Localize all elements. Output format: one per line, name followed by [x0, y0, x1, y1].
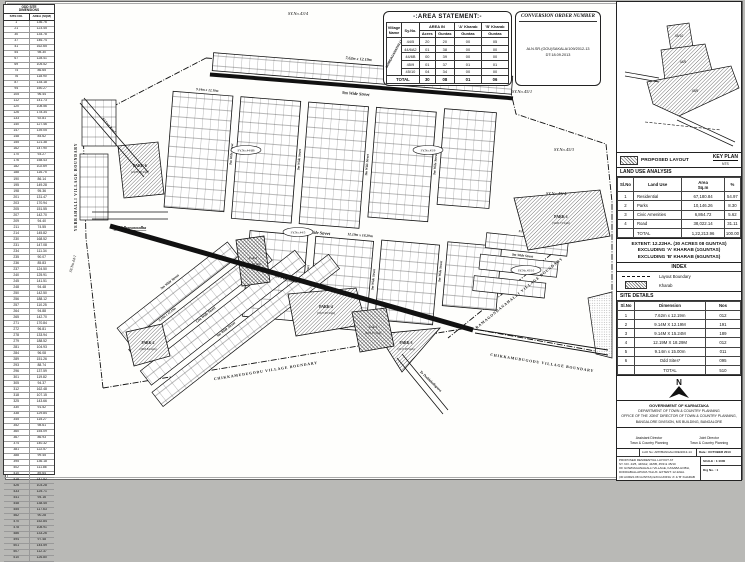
sd-nos: 011: [706, 347, 741, 356]
site-no-cell: 265: [4, 315, 30, 320]
site-block: [299, 102, 368, 228]
boundary-label-bottom: CHIKKAMUDUGODU VILLAGE BOUNDARY: [214, 361, 318, 381]
site-no-cell: 237: [4, 267, 30, 272]
site-area-cell: 111.86: [30, 466, 55, 471]
site-no-cell: 74: [4, 69, 30, 74]
site-no-cell: 301: [4, 375, 30, 380]
dim-label: 9.14m x 12.19m: [196, 87, 219, 93]
dim-label: 7.62m x 12.19m: [345, 55, 372, 62]
land-use-body: 1 Residential 67,180.84 54.97 2 Parks 10…: [618, 192, 741, 238]
main-road-continuation: [475, 333, 608, 355]
sy-oval-label: SY.No.45/9: [421, 149, 436, 153]
site-details-row: TOTAL 510: [618, 366, 741, 375]
site-area-cell: 117.63: [30, 508, 55, 513]
lu-pct: 5.62: [724, 210, 740, 219]
park-4-label: PARK-4: [319, 305, 333, 309]
park-3-area-label: (2317.08 Sqm): [398, 348, 415, 351]
guntas-cell: 20: [435, 38, 454, 46]
drawing-description: PROPOSED RESIDENTIAL LAYOUT AT SY. NO. 4…: [617, 457, 701, 480]
assistant-director-label: Assistant Director: [636, 436, 663, 440]
site-no-cell: 236: [4, 261, 30, 266]
site-area-cell: 118.90: [30, 75, 55, 80]
site-area-cell: 188.12: [30, 297, 55, 302]
lu-area: 6,864.72: [682, 210, 725, 219]
guntas-cell: 37: [435, 60, 454, 68]
col-area-sqm: AREA (SQM): [30, 14, 55, 19]
sy-oval-label: SY.No.45/10: [518, 269, 535, 273]
site-no-cell: 507: [4, 550, 30, 555]
sd-dimension: 9.14M X 12.19M: [635, 320, 706, 329]
total-label: TOTAL: [387, 76, 420, 84]
a-kharab-cell: 00: [454, 68, 481, 76]
conversion-order-box: CONVERSION ORDER NUMBER ALN.SR.(GOU)SAKA…: [515, 11, 601, 86]
site-no-cell: 214: [4, 231, 30, 236]
lu-slno: 4: [618, 219, 634, 228]
b-kharab-cell: 00: [481, 53, 508, 61]
col-dimension: Dimension: [635, 301, 706, 310]
site-details-box: SITE DETAILS Sl.No Dimension Nos 1 7.62m…: [616, 291, 742, 377]
key-plan-svg: 45/10 44/5 45/9: [617, 2, 743, 152]
syno-cell: 44/6B: [402, 53, 420, 61]
b-kharab-cell: 00: [481, 68, 508, 76]
sd-dimension: TOTAL: [635, 366, 706, 375]
site-area-cell: 147.90: [30, 147, 55, 152]
site-no-cell: 278: [4, 333, 30, 338]
a-kharab-cell: 00: [454, 53, 481, 61]
site-details-row: 1 7.62m x 12.19m 012: [618, 310, 741, 319]
site-no-cell: 289: [4, 357, 30, 362]
sd-nos: 191: [706, 320, 741, 329]
site-area-cell: 96.08: [30, 351, 55, 356]
site-area-cell: 94.40: [30, 219, 55, 224]
site-area-cell: 168.52: [30, 237, 55, 242]
site-area-cell: 128.41: [30, 57, 55, 62]
site-area-cell: 162.65: [30, 45, 55, 50]
site-area-cell: 136.18: [30, 460, 55, 465]
kharab-label: Kharab: [659, 283, 673, 288]
site-no-cell: 41: [4, 45, 30, 50]
site-area-cell: 94.37: [30, 381, 55, 386]
street-label: 9m Wide Street: [229, 142, 235, 164]
civic-amenity-1-label: C.A-1: [369, 325, 377, 329]
index-box: INDEX Layout Boundary Kharab: [616, 262, 742, 292]
site-no-cell: 176: [4, 159, 30, 164]
government-block: GOVERNMENT OF KARNATAKA DEPARTMENT OF TO…: [616, 400, 742, 428]
site-no-cell: 256: [4, 297, 30, 302]
site-area-cell: 105.52: [30, 63, 55, 68]
street-label: 9m Wide Street: [296, 148, 302, 170]
land-use-table: Sl.No Land Use Area Sq.m % 1 Residential…: [617, 177, 741, 238]
site-no-cell: 281: [4, 345, 30, 350]
site-no-cell: 230: [4, 237, 30, 242]
site-no-cell: 470: [4, 520, 30, 525]
site-area-cell: 127.46: [30, 123, 55, 128]
joint-director-label: Joint Director: [699, 436, 719, 440]
site-no-cell: 1: [4, 21, 30, 26]
title-block-row1: LHO No: APP/BANGALORE/2013-14 Date : OCT…: [617, 449, 741, 457]
site-area-cell: 104.93: [30, 345, 55, 350]
site-area-cell: 95.36: [30, 189, 55, 194]
site-no-cell: 54: [4, 51, 30, 56]
site-no-cell: 284: [4, 351, 30, 356]
sd-slno: 1: [618, 310, 635, 319]
site-area-cell: 86.93: [30, 436, 55, 441]
col-guntas: Guntas: [481, 30, 508, 38]
site-no-cell: 293: [4, 363, 30, 368]
site-area-cell: 151.55: [30, 207, 55, 212]
syno-cell: 44/5: [402, 38, 420, 46]
site-no-cell: 271: [4, 321, 30, 326]
right-panel: 45/10 44/5 45/9 PROPOSED LAYOUT KEY PLAN…: [616, 2, 742, 481]
col-site-no: SITE NO.: [4, 14, 30, 19]
site-area-cell: 92.81: [30, 117, 55, 122]
conversion-order-title: CONVERSION ORDER NUMBER: [519, 14, 597, 22]
sd-slno: 2: [618, 320, 635, 329]
site-no-cell: 147: [4, 129, 30, 134]
site-no-cell: 37: [4, 39, 30, 44]
total-a-kharab: 01: [454, 76, 481, 84]
site-area-cell: 188.52: [30, 339, 55, 344]
scale-label: SCALE : 1:1000: [701, 457, 741, 466]
site-no-cell: 410: [4, 472, 30, 477]
street-label: 9m Wide Street: [342, 90, 370, 97]
signature-block: Assistant Director Town & Country Planni…: [616, 427, 742, 449]
title-block-row2: PROPOSED RESIDENTIAL LAYOUT AT SY. NO. 4…: [617, 457, 741, 480]
sd-slno: [618, 366, 635, 375]
site-block: [437, 109, 496, 209]
site-area-cell: 147.08: [30, 243, 55, 248]
street-label: 9m Wide Street: [432, 152, 438, 174]
site-no-cell: 312: [4, 387, 30, 392]
lu-name: Parks: [633, 201, 681, 210]
site-area-cell: 90.07: [30, 255, 55, 260]
sd-dimension: Odd Sites*: [635, 356, 706, 365]
site-no-cell: 126: [4, 111, 30, 116]
site-area-cell: 162.48: [30, 387, 55, 392]
col-village: Village Name: [387, 23, 402, 38]
site-area-cell: 123.45: [30, 27, 55, 32]
land-use-box: LAND USE ANALYSIS Sl.No Land Use Area Sq…: [616, 167, 742, 239]
site-area-cell: 110.25: [30, 303, 55, 308]
proposed-layout-label: PROPOSED LAYOUT: [641, 158, 689, 163]
col-a-kharab: 'A' Kharab: [454, 23, 481, 31]
sd-slno: 5: [618, 347, 635, 356]
park-2-label: PARK-2: [142, 341, 155, 345]
site-no-cell: 257: [4, 303, 30, 308]
site-area-cell: 146.74: [30, 39, 55, 44]
site-area-cell: 134.78: [30, 33, 55, 38]
park-1-area: [514, 190, 610, 250]
joint-director-dept: Town & Country Planning: [690, 441, 728, 445]
site-no-cell: 235: [4, 255, 30, 260]
date-label: Date : OCTOBER 2013: [697, 449, 741, 456]
sd-nos: 012: [706, 310, 741, 319]
a-kharab-cell: 00: [454, 45, 481, 53]
col-b-kharab: 'B' Kharab: [481, 23, 508, 31]
site-no-cell: 374: [4, 442, 30, 447]
total-acres: 30: [419, 76, 435, 84]
acres-cell: 00: [419, 53, 435, 61]
site-block: [80, 154, 108, 220]
site-area-cell: 108.91: [30, 526, 55, 531]
lu-name: Civic Amenities: [633, 210, 681, 219]
col-syno: Sy.No.: [402, 23, 420, 38]
legend-row: PROPOSED LAYOUT KEY PLAN NTS: [616, 152, 742, 168]
site-no-cell: 325: [4, 399, 30, 404]
col-percent: %: [724, 178, 740, 192]
conversion-order-text: ALN.SR.(GOU)SAKALA/109/2012-13 DT:18.09.…: [519, 22, 597, 83]
site-block: [164, 91, 233, 211]
site-area-cell: 107.15: [30, 393, 55, 398]
guntas-cell: 38: [435, 45, 454, 53]
site-area-cell: 121.38: [30, 141, 55, 146]
index-title: INDEX: [617, 263, 741, 272]
site-no-cell: 67: [4, 57, 30, 62]
site-no-cell: 272: [4, 327, 30, 332]
site-no-cell: 345: [4, 418, 30, 423]
site-area-cell: 119.82: [30, 375, 55, 380]
area-statement-box: -:AREA STATEMENT:- Village Name Sy.No. A…: [383, 11, 512, 86]
site-no-cell: 510: [4, 556, 30, 561]
site-no-cell: 279: [4, 339, 30, 344]
a-kharab-cell: 00: [454, 38, 481, 46]
sd-dimension: 9.14M X 15.24M: [635, 329, 706, 338]
site-area-cell: 98.61: [30, 424, 55, 429]
boundary-label-left: YERRAHALLI VILLAGE BOUNDARY: [74, 143, 78, 231]
site-no-cell: 231: [4, 243, 30, 248]
north-letter: N: [676, 378, 682, 387]
site-no-cell: 205: [4, 207, 30, 212]
extent-line3: EXCLUDING 'B' KHARAB (6GUNTAS): [617, 254, 741, 260]
site-area-cell: 88.74: [30, 363, 55, 368]
site-details-row: 3 9.14M X 15.24M 189: [618, 329, 741, 338]
index-row-kharab: Kharab: [617, 280, 741, 291]
b-kharab-cell: 00: [481, 45, 508, 53]
road-label-west: To Vidhanasoudha: [114, 225, 147, 230]
southeast-exit-road: [402, 354, 448, 410]
assistant-director-dept: Town & Country Planning: [630, 441, 668, 445]
site-area-cell: 91.52: [30, 406, 55, 411]
site-area-cell: 142.50: [30, 291, 55, 296]
site-no-cell: 296: [4, 369, 30, 374]
sy-label: SY.No.43/4: [288, 11, 309, 16]
col-slno: Sl.No: [618, 301, 635, 310]
site-area-cell: 86.14: [30, 177, 55, 182]
sd-slno: 3: [618, 329, 635, 338]
street-label: 9m Wide Street: [364, 153, 370, 175]
boundary-label-bottom-right: CHIKKAMUDUGODU VILLAGE BOUNDARY: [490, 353, 594, 373]
village-name: GOWDAGANAHALLI: [385, 39, 403, 69]
dim-label: 12.19m x 18.29m: [347, 232, 373, 238]
guntas-cell: 39: [435, 53, 454, 61]
site-area-cell: 150.27: [30, 87, 55, 92]
main-road-continuation: [473, 329, 608, 350]
site-block: [231, 97, 300, 223]
site-no-cell: 112: [4, 99, 30, 104]
col-area-line2: Sq.m: [698, 185, 709, 190]
desc-line5: (30 ACRES 08 GUNTAS) EXCLUDING 'A' & 'B'…: [619, 475, 698, 479]
site-block: [442, 242, 501, 310]
site-no-cell: 448: [4, 502, 30, 507]
kharab-area: [588, 292, 612, 358]
site-area-cell: 138.45: [30, 502, 55, 507]
sd-nos: 012: [706, 338, 741, 347]
key-plan-box: 45/10 44/5 45/9: [616, 1, 742, 153]
park-3-label: PARK-3: [400, 341, 413, 345]
street-label: 9m Wide Street: [437, 260, 443, 282]
site-no-cell: 433: [4, 490, 30, 495]
site-no-cell: 330: [4, 406, 30, 411]
acres-cell: 04: [419, 68, 435, 76]
site-area-cell: 149.28: [30, 183, 55, 188]
site-area-cell: 93.27: [30, 153, 55, 158]
key-plan-label: 45/9: [692, 89, 699, 93]
site-area-cell: 152.84: [30, 520, 55, 525]
site-details-row: 4 12.19M X 18.29M 012: [618, 338, 741, 347]
site-no-cell: 203: [4, 201, 30, 206]
lu-area: 38,022.14: [682, 219, 725, 228]
north-arrow-box: N: [616, 375, 742, 401]
site-area-cell: 125.91: [30, 273, 55, 278]
site-area-cell: 111.34: [30, 249, 55, 254]
street-label: 9m Wide Street: [370, 268, 376, 290]
site-no-cell: 140: [4, 123, 30, 128]
site-area-cell: 103.28: [30, 484, 55, 489]
kharab-symbol: [621, 281, 651, 289]
guntas-cell: 34: [435, 68, 454, 76]
site-area-cell: 112.37: [30, 550, 55, 555]
site-no-cell: 462: [4, 514, 30, 519]
sd-dimension: 9.14m x 15.00m: [635, 347, 706, 356]
site-area-cell: 143.66: [30, 399, 55, 404]
site-no-cell: 395: [4, 460, 30, 465]
site-no-cell: 264: [4, 309, 30, 314]
site-area-cell: 102.69: [30, 165, 55, 170]
site-no-cell: 21: [4, 27, 30, 32]
site-no-cell: 486: [4, 532, 30, 537]
odd-site-table: ODD SITE DIMENSIONS SITE NO. AREA (SQM) …: [3, 4, 55, 475]
site-no-cell: 87: [4, 81, 30, 86]
sd-slno: 4: [618, 338, 635, 347]
lho-number: LHO No: APP/BANGALORE/2013-14: [640, 449, 697, 456]
col-guntas: Guntas: [454, 30, 481, 38]
site-area-cell: 99.45: [30, 454, 55, 459]
sy-label: SY.No.44/1: [68, 254, 77, 272]
syno-cell: 44/6A2: [402, 45, 420, 53]
site-no-cell: 318: [4, 393, 30, 398]
lu-slno: 3: [618, 210, 634, 219]
site-area-cell: 115.27: [30, 418, 55, 423]
odd-site-title-line2: DIMENSIONS: [19, 8, 39, 12]
land-use-row: TOTAL 1,22,213.96 100.00: [618, 228, 741, 237]
site-no-cell: 148: [4, 135, 30, 140]
site-details-body: 1 7.62m x 12.19m 012 2 9.14M X 12.19M 19…: [618, 310, 741, 374]
site-no-cell: 133: [4, 117, 30, 122]
site-area-cell: 124.50: [30, 267, 55, 272]
site-no-cell: 190: [4, 177, 30, 182]
sd-dimension: 12.19M X 18.29M: [635, 338, 706, 347]
site-no-cell: 388: [4, 454, 30, 459]
site-no-cell: 381: [4, 448, 30, 453]
site-area-cell: 94.48: [30, 285, 55, 290]
site-no-cell: 209: [4, 219, 30, 224]
key-plan-scale: NTS: [722, 162, 729, 166]
site-area-cell: 141.73: [30, 99, 55, 104]
site-no-cell: 207: [4, 213, 30, 218]
acres-cell: 20: [419, 38, 435, 46]
syno-cell: 45/10: [402, 68, 420, 76]
park-2-area-label: (2063.84 Sqm): [140, 348, 157, 351]
sd-nos: 510: [706, 366, 741, 375]
site-area-cell: 142.70: [30, 315, 55, 320]
layout-boundary-label: Layout Boundary: [659, 274, 691, 279]
sd-nos: 189: [706, 329, 741, 338]
area-statement-title: -:AREA STATEMENT:-: [386, 13, 509, 22]
site-no-cell: 367: [4, 436, 30, 441]
site-area-cell: 90.28: [30, 514, 55, 519]
land-use-row: 3 Civic Amenities 6,864.72 5.62: [618, 210, 741, 219]
lu-pct: 54.97: [724, 192, 740, 201]
total-guntas: 08: [435, 76, 454, 84]
site-area-cell: 94.88: [30, 309, 55, 314]
site-no-cell: 478: [4, 526, 30, 531]
site-no-cell: 198: [4, 189, 30, 194]
area-statement-panel: -:AREA STATEMENT:- Village Name Sy.No. A…: [383, 11, 601, 86]
site-area-cell: 154.09: [30, 430, 55, 435]
site-area-cell: 134.18: [30, 81, 55, 86]
col-land-use: Land Use: [633, 178, 681, 192]
site-no-cell: 211: [4, 225, 30, 230]
site-no-cell: 188: [4, 171, 30, 176]
col-slno: Sl.No: [618, 178, 634, 192]
b-kharab-cell: 01: [481, 60, 508, 68]
north-arrow-icon: N: [664, 376, 694, 400]
site-details-row: 6 Odd Sites* 095: [618, 356, 741, 365]
site-no-cell: 201: [4, 195, 30, 200]
site-area-cell: 141.51: [30, 279, 55, 284]
civic-amenity-2-label: C.A-2: [249, 256, 257, 260]
site-area-cell: 86.65: [30, 69, 55, 74]
sy-label: SY.No.45/3: [554, 147, 575, 152]
site-no-cell: 234: [4, 249, 30, 254]
proposed-layout-swatch: [620, 156, 638, 165]
area-statement-table: Village Name Sy.No. AREA IN 'A' Kharab '…: [386, 22, 509, 84]
site-area-cell: 96.81: [30, 327, 55, 332]
land-use-title: LAND USE ANALYSIS: [617, 168, 741, 177]
index-row-boundary: Layout Boundary: [617, 272, 741, 280]
site-block: [368, 107, 436, 221]
site-no-cell: 105: [4, 93, 30, 98]
total-b-kharab: 06: [481, 76, 508, 84]
site-area-cell: 108.56: [30, 105, 55, 110]
site-area-cell: 74.55: [30, 225, 55, 230]
key-plan-title-text: KEY PLAN: [713, 154, 738, 161]
lu-pct: 8.30: [724, 201, 740, 210]
site-area-cell: 170.84: [30, 321, 55, 326]
site-no-cell: 494: [4, 538, 30, 543]
site-no-cell: 360: [4, 430, 30, 435]
site-no-cell: 501: [4, 544, 30, 549]
land-use-row: 4 Road 38,022.14 31.11: [618, 219, 741, 228]
site-no-cell: 402: [4, 466, 30, 471]
key-plan-title: KEY PLAN NTS: [713, 154, 738, 167]
site-area-cell: 122.57: [30, 448, 55, 453]
civic-amenity-1-area: [352, 308, 394, 352]
acres-cell: 01: [419, 45, 435, 53]
key-plan-label: 45/10: [675, 34, 684, 38]
title-block-no-cell: [617, 449, 640, 456]
site-no-cell: 305: [4, 381, 30, 386]
